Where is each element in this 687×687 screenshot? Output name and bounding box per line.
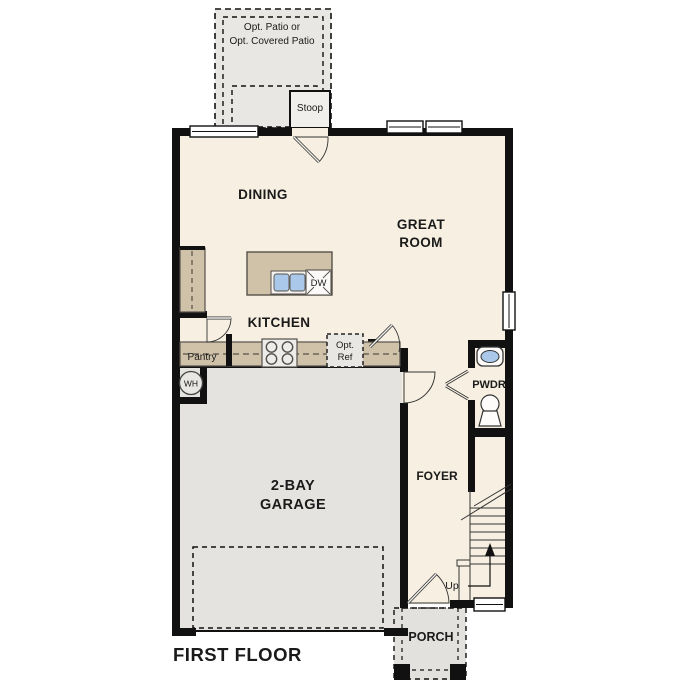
patio-label-line2: Opt. Covered Patio bbox=[229, 36, 314, 47]
porch-label: PORCH bbox=[408, 630, 453, 644]
plan-title: FIRST FLOOR bbox=[173, 644, 302, 665]
great-room-label-line1: GREAT bbox=[397, 217, 446, 232]
patio-label-line1: Opt. Patio or bbox=[244, 22, 301, 33]
wall-stair-left bbox=[468, 437, 475, 492]
wall-right bbox=[505, 128, 513, 608]
wall-wh-bottom bbox=[172, 397, 207, 404]
wh-label: WH bbox=[184, 379, 198, 389]
garage-label-line1: 2-BAY bbox=[271, 478, 315, 494]
wall-foyer-garage-upper bbox=[400, 348, 408, 372]
wall-garage-bottom-left bbox=[172, 628, 196, 636]
wall-garage-bottom-right bbox=[384, 628, 408, 636]
pantry-label: Pantry bbox=[188, 352, 217, 363]
up-label: Up bbox=[445, 580, 459, 592]
counter-left-cap bbox=[180, 246, 205, 250]
garage-label-line2: GARAGE bbox=[260, 497, 326, 513]
opt-ref: Opt. Ref bbox=[327, 334, 363, 367]
floorplan-page: Opt. Patio or Opt. Covered Patio Stoop P… bbox=[0, 0, 687, 687]
wall-pwdr-left-upper bbox=[468, 340, 475, 368]
range-cooktop bbox=[262, 339, 297, 367]
water-heater: WH bbox=[180, 372, 203, 395]
dw-label: DW bbox=[311, 278, 327, 289]
sink-basin-right bbox=[290, 274, 305, 291]
garage-door-line bbox=[196, 630, 384, 632]
opt-ref-label-line2: Ref bbox=[338, 352, 353, 363]
foyer-label: FOYER bbox=[416, 469, 458, 483]
pwdr-sink bbox=[477, 347, 503, 366]
floorplan-drawing: Opt. Patio or Opt. Covered Patio Stoop P… bbox=[0, 0, 687, 687]
porch-post-left bbox=[394, 664, 410, 680]
wall-left bbox=[172, 128, 180, 636]
sink-basin-left bbox=[274, 274, 289, 291]
wall-foyer-garage-lower bbox=[400, 403, 408, 608]
great-room-label-line2: ROOM bbox=[399, 235, 443, 250]
dishwasher: DW bbox=[306, 270, 331, 295]
stoop: Stoop bbox=[290, 91, 330, 128]
stoop-label: Stoop bbox=[297, 103, 324, 114]
porch-post-right bbox=[450, 664, 466, 680]
pwdr-label: PWDR bbox=[472, 379, 506, 391]
kitchen-island: DW bbox=[247, 252, 332, 295]
rear-door-opening bbox=[292, 128, 328, 136]
porch: PORCH bbox=[394, 608, 466, 680]
wall-pwdr-left-lower bbox=[468, 400, 475, 437]
kitchen-label: KITCHEN bbox=[248, 315, 311, 330]
wall-pantry-stub-right-over bbox=[226, 334, 232, 366]
opt-ref-label-line1: Opt. bbox=[336, 340, 354, 351]
dining-label: DINING bbox=[238, 187, 288, 202]
